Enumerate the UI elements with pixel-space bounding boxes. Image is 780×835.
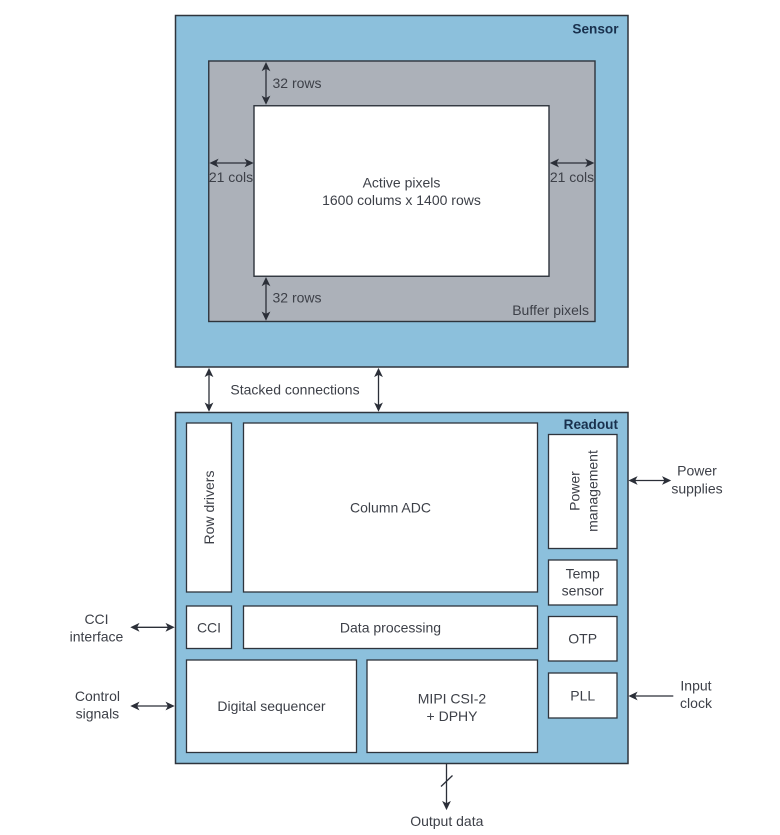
- svg-text:CCI: CCI: [84, 611, 108, 627]
- svg-text:OTP: OTP: [568, 631, 597, 647]
- svg-text:Buffer pixels: Buffer pixels: [512, 302, 589, 318]
- svg-text:clock: clock: [680, 695, 713, 711]
- svg-text:Output data: Output data: [410, 813, 483, 829]
- svg-text:21 cols: 21 cols: [209, 169, 253, 185]
- svg-text:Column ADC: Column ADC: [350, 500, 431, 516]
- svg-text:Sensor: Sensor: [572, 22, 619, 37]
- svg-text:Data processing: Data processing: [340, 620, 441, 636]
- svg-text:Power: Power: [567, 471, 583, 511]
- svg-text:Input: Input: [680, 678, 711, 694]
- svg-text:sensor: sensor: [562, 583, 604, 599]
- svg-text:Digital sequencer: Digital sequencer: [217, 698, 326, 714]
- svg-text:32 rows: 32 rows: [273, 290, 322, 306]
- svg-text:interface: interface: [70, 629, 124, 645]
- svg-text:signals: signals: [76, 706, 120, 722]
- svg-text:21 cols: 21 cols: [550, 169, 594, 185]
- svg-text:32 rows: 32 rows: [273, 75, 322, 91]
- svg-text:1600 colums x 1400 rows: 1600 colums x 1400 rows: [322, 192, 481, 208]
- svg-text:Row drivers: Row drivers: [201, 471, 217, 545]
- svg-text:Stacked connections: Stacked connections: [230, 382, 359, 398]
- svg-text:Readout: Readout: [564, 417, 619, 432]
- svg-text:supplies: supplies: [671, 481, 722, 497]
- svg-text:CCI: CCI: [197, 620, 221, 636]
- svg-text:Control: Control: [75, 688, 120, 704]
- svg-text:management: management: [585, 450, 601, 532]
- svg-text:Temp: Temp: [566, 566, 600, 582]
- svg-text:Power: Power: [677, 463, 717, 479]
- svg-text:MIPI CSI-2: MIPI CSI-2: [418, 691, 487, 707]
- svg-text:+ DPHY: + DPHY: [427, 708, 479, 724]
- svg-text:PLL: PLL: [570, 688, 595, 704]
- svg-text:Active pixels: Active pixels: [363, 175, 441, 191]
